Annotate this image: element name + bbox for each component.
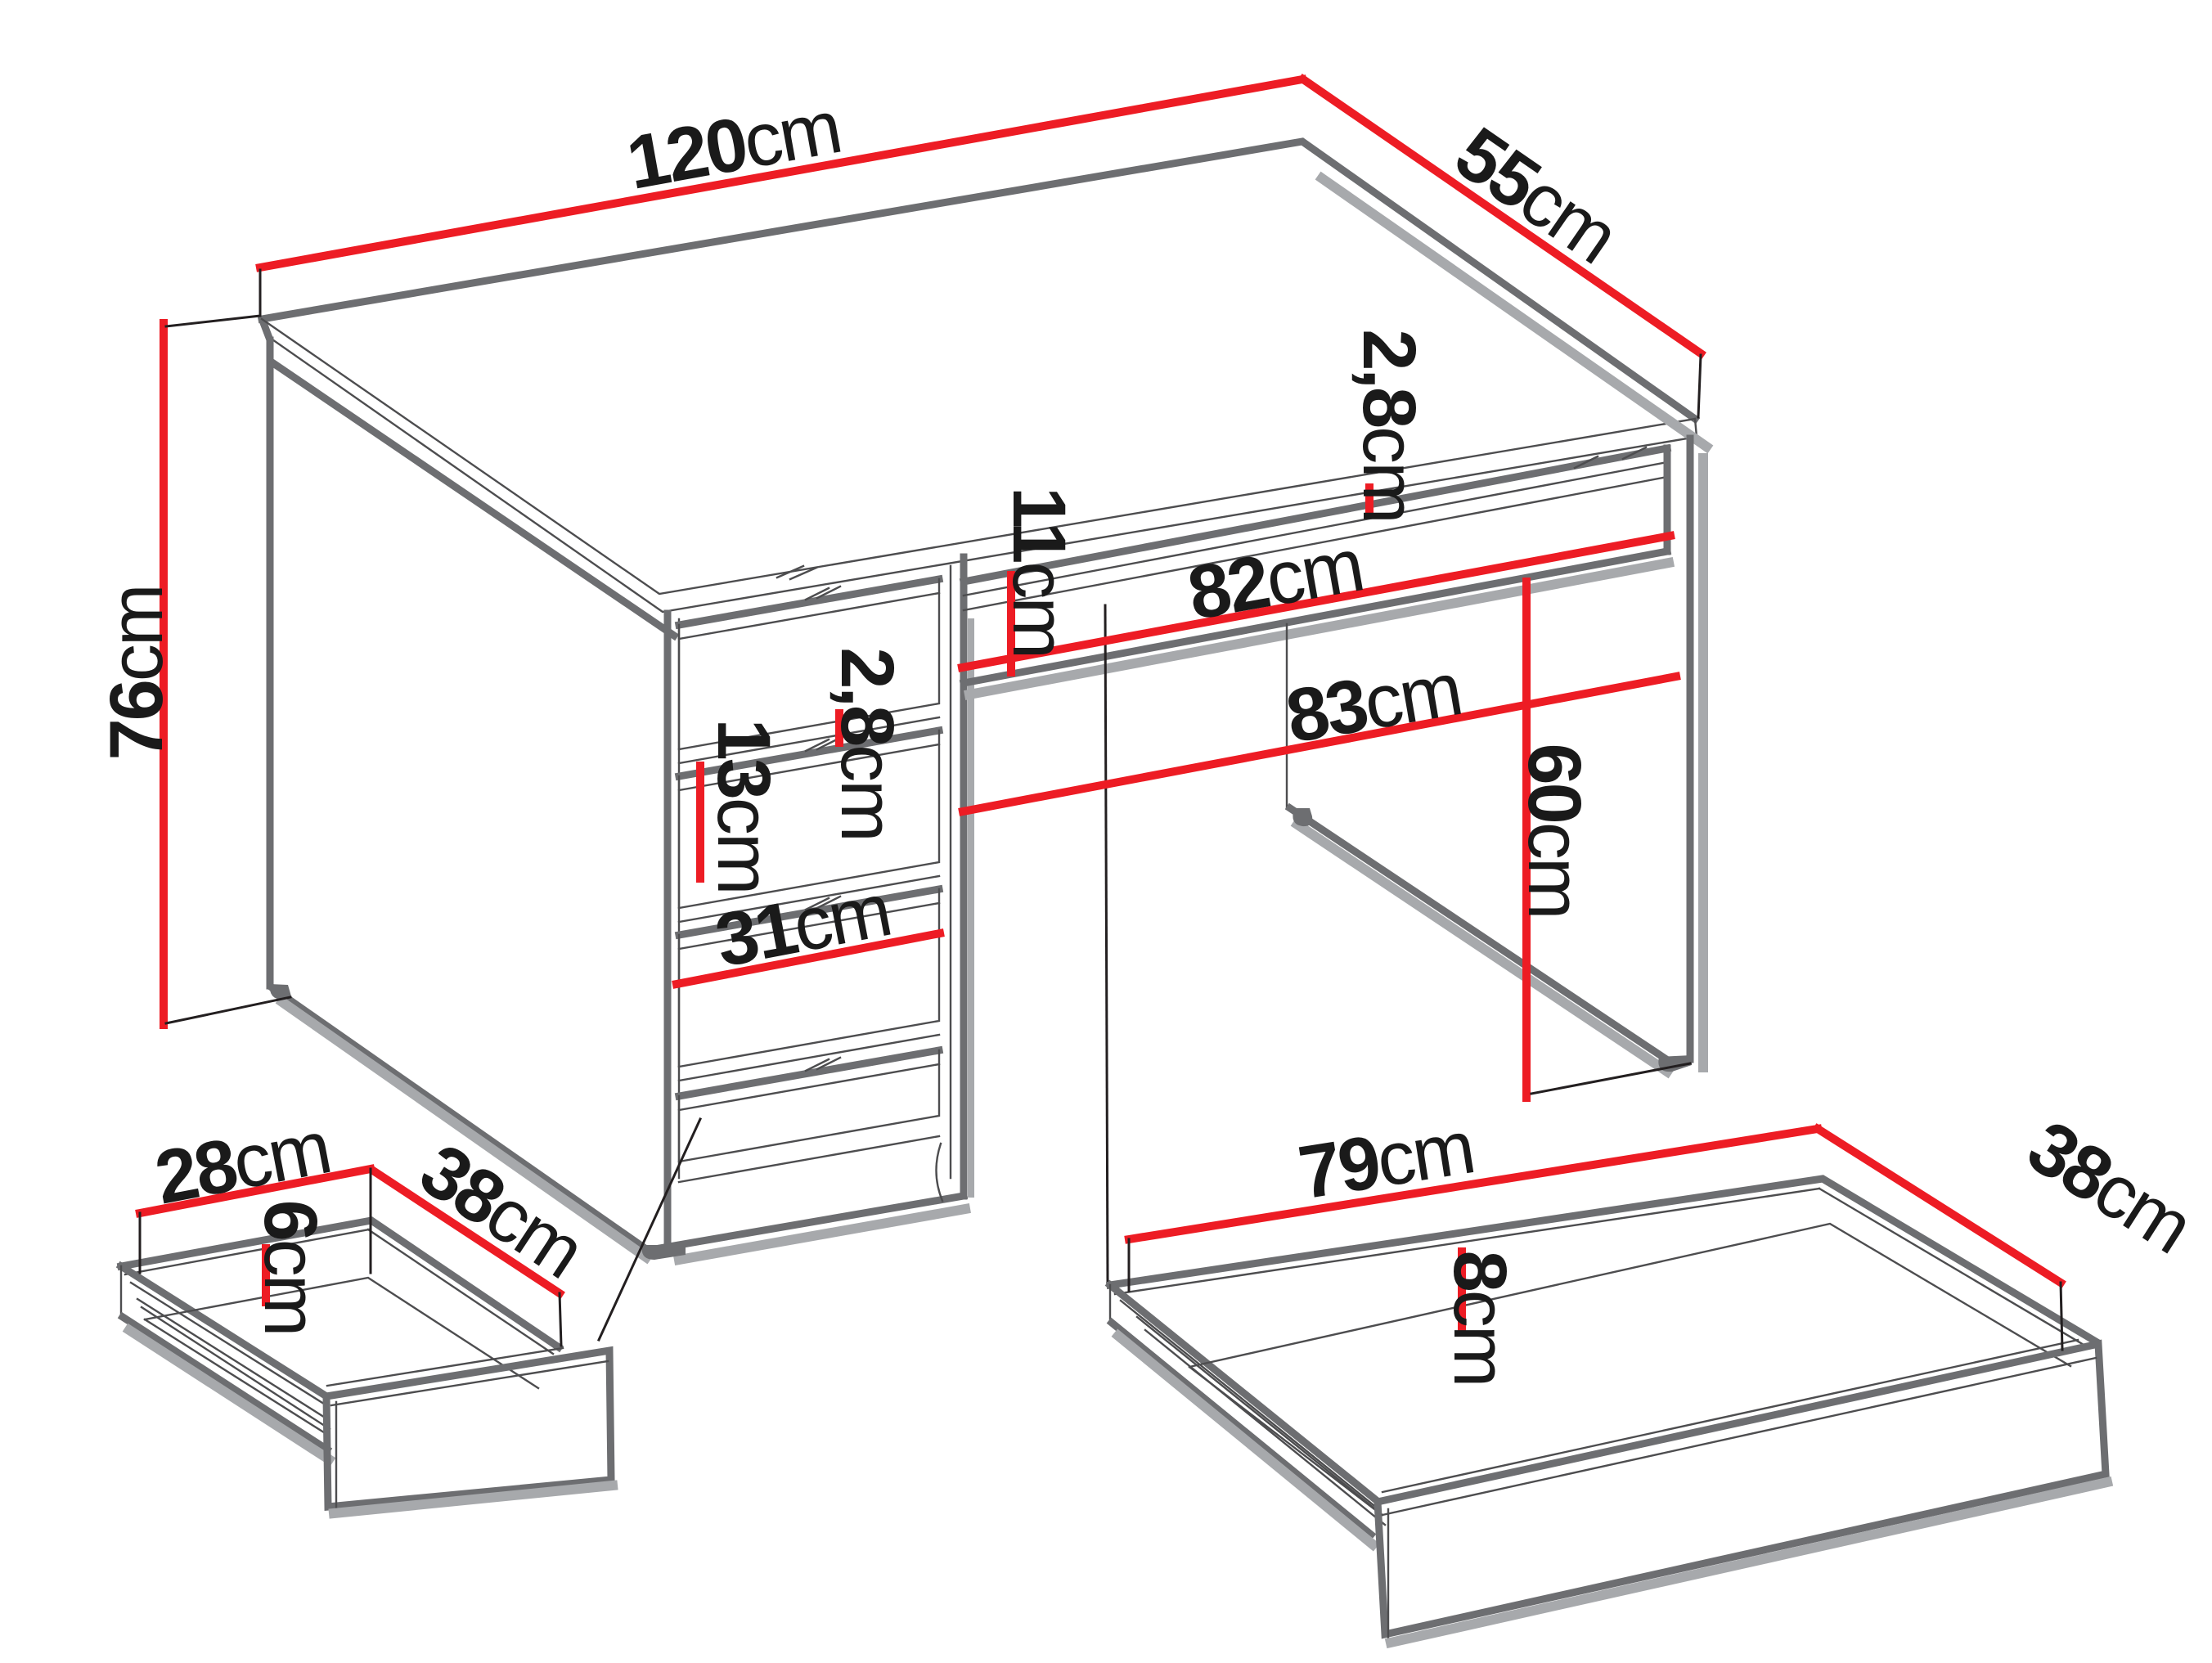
svg-text:11cm: 11cm	[997, 487, 1081, 657]
svg-text:2,8cm: 2,8cm	[825, 647, 909, 840]
svg-text:8cm: 8cm	[1438, 1251, 1522, 1386]
svg-text:76cm: 76cm	[95, 587, 178, 761]
svg-text:6cm: 6cm	[249, 1200, 332, 1335]
svg-text:2,8cm: 2,8cm	[1347, 329, 1431, 522]
svg-text:60cm: 60cm	[1513, 744, 1596, 918]
svg-text:13cm: 13cm	[702, 719, 785, 893]
